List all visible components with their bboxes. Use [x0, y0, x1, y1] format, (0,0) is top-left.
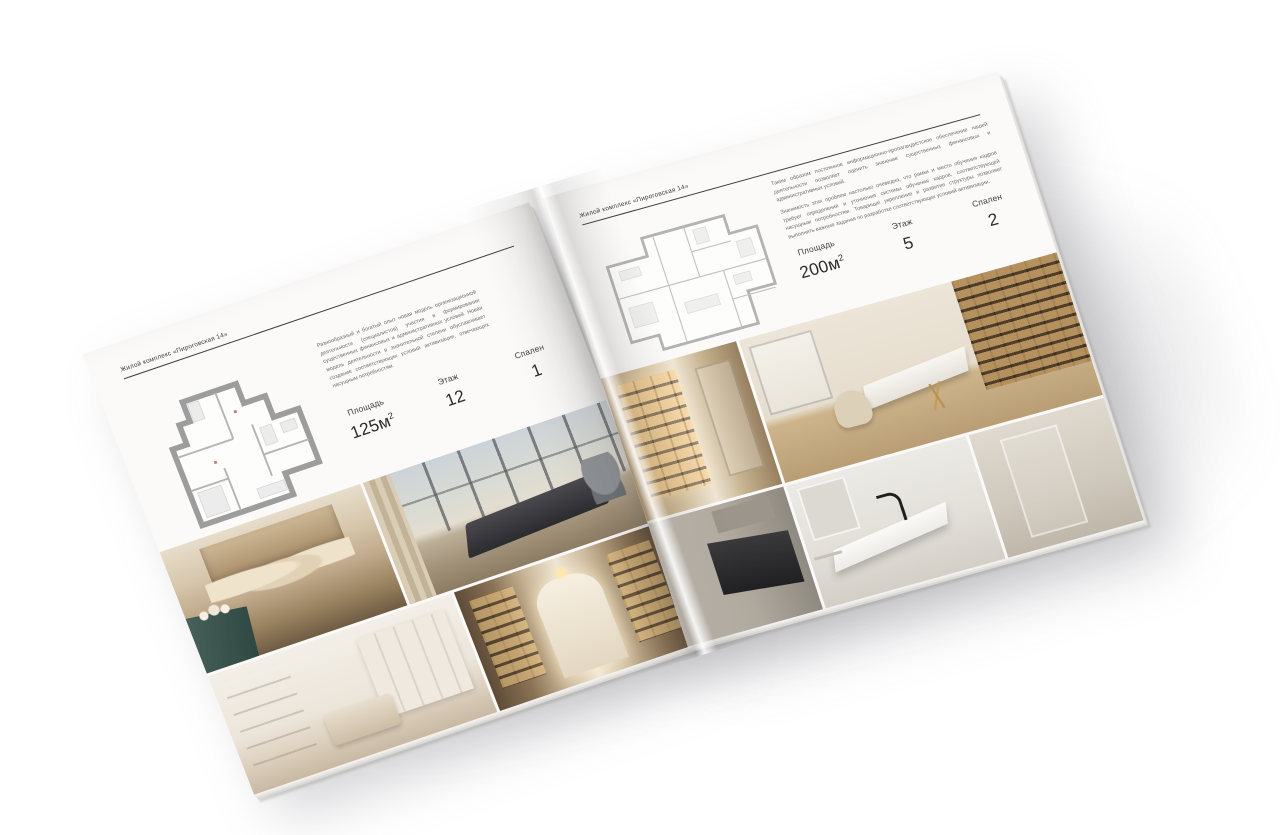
spec-area-value: 200м2	[797, 252, 848, 283]
kitchen-hood	[712, 496, 776, 534]
spec-area-number: 200м	[797, 253, 842, 282]
spec-area: Площадь 200м2	[792, 237, 848, 284]
bed-bench	[322, 692, 402, 746]
dark-appliance-block	[707, 530, 805, 595]
black-faucet-stem	[901, 507, 908, 520]
spec-area-number: 125м	[348, 412, 394, 443]
wall-shelves	[221, 661, 317, 768]
spec-floor: Этаж 5	[879, 213, 933, 259]
spec-floor: Этаж 12	[425, 367, 480, 415]
spec-area: Площадь 125м2	[342, 395, 399, 443]
scene: Жилой комплекс «Пироговская 14»	[0, 0, 1280, 835]
arched-niche	[530, 566, 629, 678]
spec-floor-value: 5	[884, 228, 933, 259]
spec-bedrooms: Спален 2	[964, 190, 1018, 236]
bathroom-mirror	[797, 477, 860, 541]
study-window	[748, 330, 834, 416]
spec-bedrooms-value: 2	[969, 205, 1018, 236]
wall-panel	[1000, 424, 1089, 538]
spec-bedrooms: Спален 1	[507, 340, 562, 388]
plan-outer-walls	[157, 368, 327, 526]
black-faucet	[875, 490, 904, 516]
